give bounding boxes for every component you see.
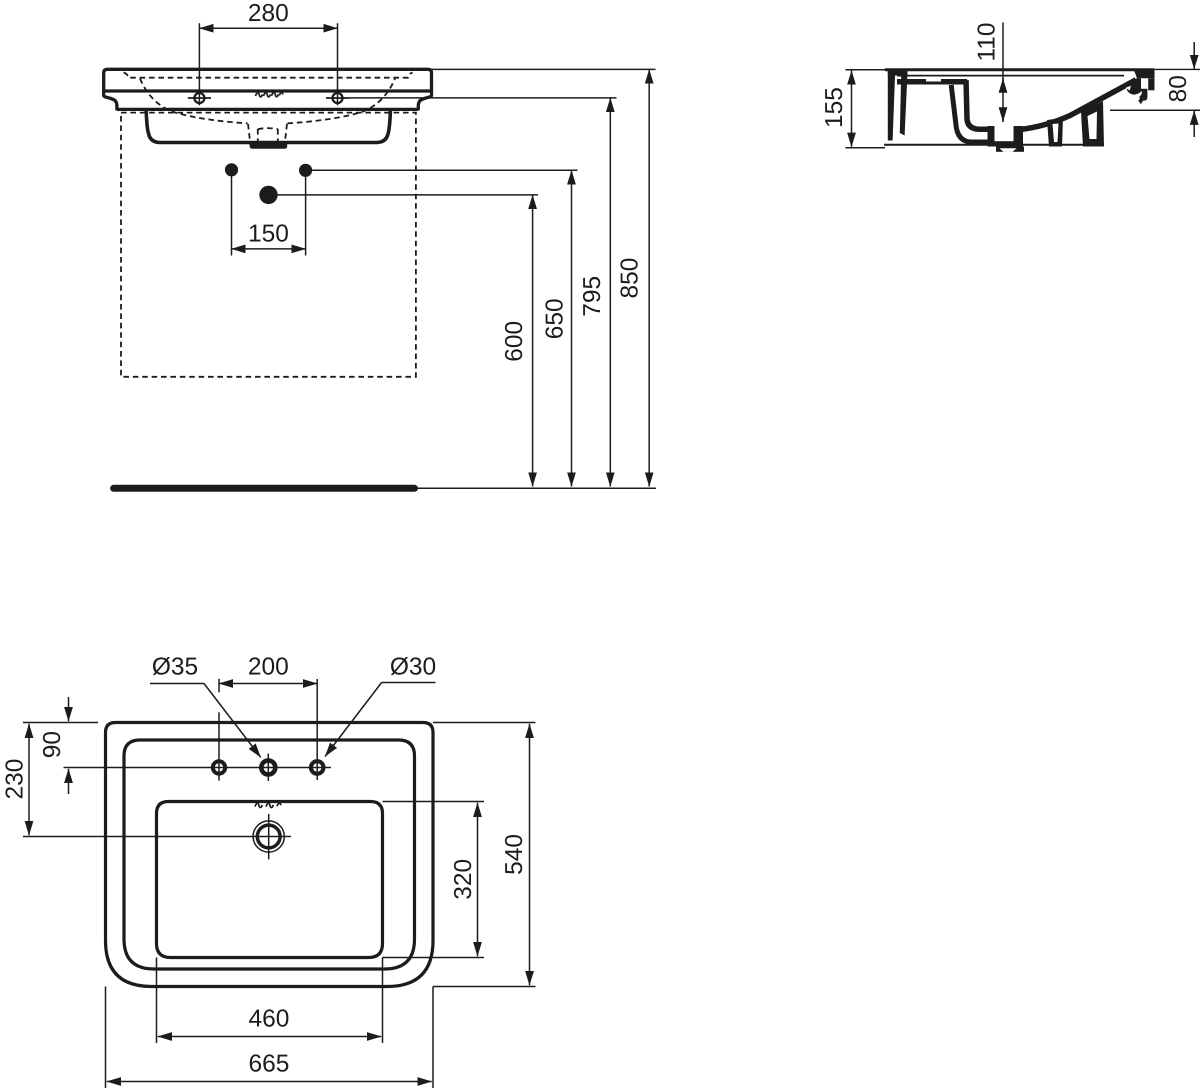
svg-text:230: 230: [1, 759, 28, 800]
svg-text:Ø30: Ø30: [390, 654, 436, 681]
svg-text:Ø35: Ø35: [152, 654, 198, 681]
svg-text:665: 665: [249, 1051, 290, 1078]
svg-text:460: 460: [249, 1006, 290, 1033]
svg-text:80: 80: [1165, 75, 1192, 102]
svg-text:110: 110: [973, 22, 1000, 61]
svg-text:150: 150: [248, 221, 289, 248]
svg-text:155: 155: [821, 87, 848, 128]
svg-text:320: 320: [450, 859, 477, 900]
svg-text:540: 540: [501, 834, 528, 875]
svg-text:795: 795: [579, 276, 606, 317]
svg-text:850: 850: [617, 258, 644, 299]
svg-text:650: 650: [541, 298, 568, 339]
svg-text:280: 280: [248, 0, 289, 27]
svg-text:90: 90: [39, 731, 66, 758]
svg-text:600: 600: [501, 321, 528, 362]
svg-text:200: 200: [248, 654, 289, 681]
